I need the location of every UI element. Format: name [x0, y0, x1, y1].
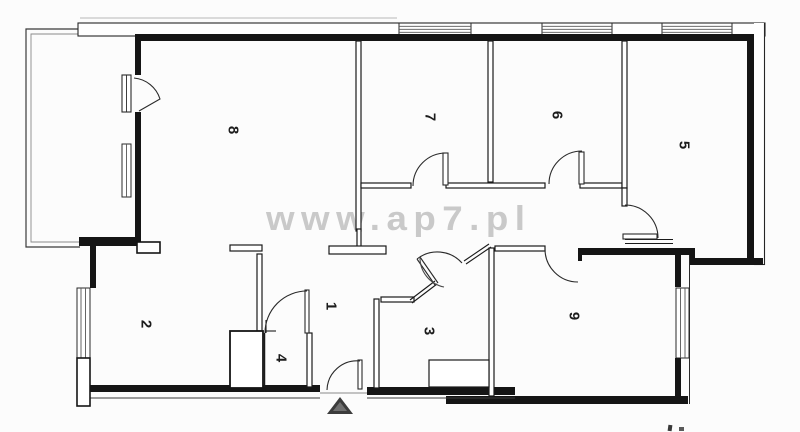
door-room3 [417, 252, 462, 287]
doors [122, 75, 658, 390]
room-label-2: 2 [139, 320, 154, 328]
wardrobe [230, 331, 263, 388]
outer-wall-band [78, 23, 765, 265]
wall-pier [77, 358, 90, 406]
floor-plan: www.ap7.pl [0, 0, 800, 432]
room-label-9: 9 [567, 312, 582, 320]
exterior-walls [79, 34, 763, 404]
door-entrance [327, 360, 362, 390]
door-balcony [122, 75, 160, 112]
room-label-1: 1 [324, 302, 339, 310]
room-label-5: 5 [677, 141, 692, 149]
door-room6 [549, 151, 584, 184]
window-left-upper [122, 144, 131, 197]
wall-stub [137, 242, 160, 253]
door-room7 [413, 153, 448, 186]
room-label-4: 4 [274, 354, 289, 362]
room-label-3: 3 [422, 327, 437, 335]
floor-plan-drawing [0, 0, 800, 432]
door-room5 [623, 205, 658, 239]
door-room9 [545, 249, 578, 282]
window-room2 [77, 288, 90, 358]
scan-artifact [668, 425, 684, 431]
bathtub [429, 360, 489, 387]
door-room4 [265, 290, 309, 333]
room-label-8: 8 [226, 126, 241, 134]
room-label-7: 7 [423, 113, 438, 121]
balcony-outline [26, 29, 80, 247]
entrance-arrow-icon [327, 397, 353, 414]
partition-walls [230, 41, 627, 396]
room-label-6: 6 [550, 111, 565, 119]
